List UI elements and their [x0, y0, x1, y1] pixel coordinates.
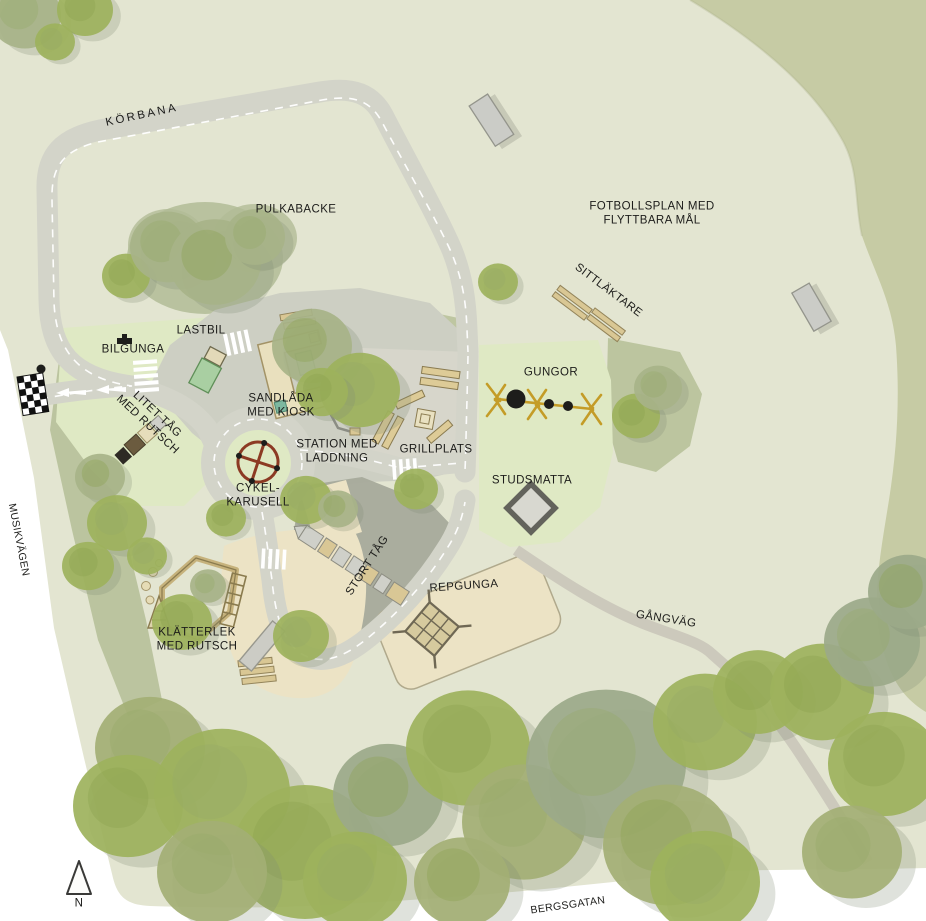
map-graphics [0, 0, 926, 921]
playground-site-plan: KÖRBANA PULKABACKE FOTBOLLSPLAN MED FLYT… [0, 0, 926, 921]
start-finish-flag-icon [17, 373, 49, 416]
north-arrow-icon [67, 861, 91, 894]
road-end-dot [37, 365, 46, 374]
